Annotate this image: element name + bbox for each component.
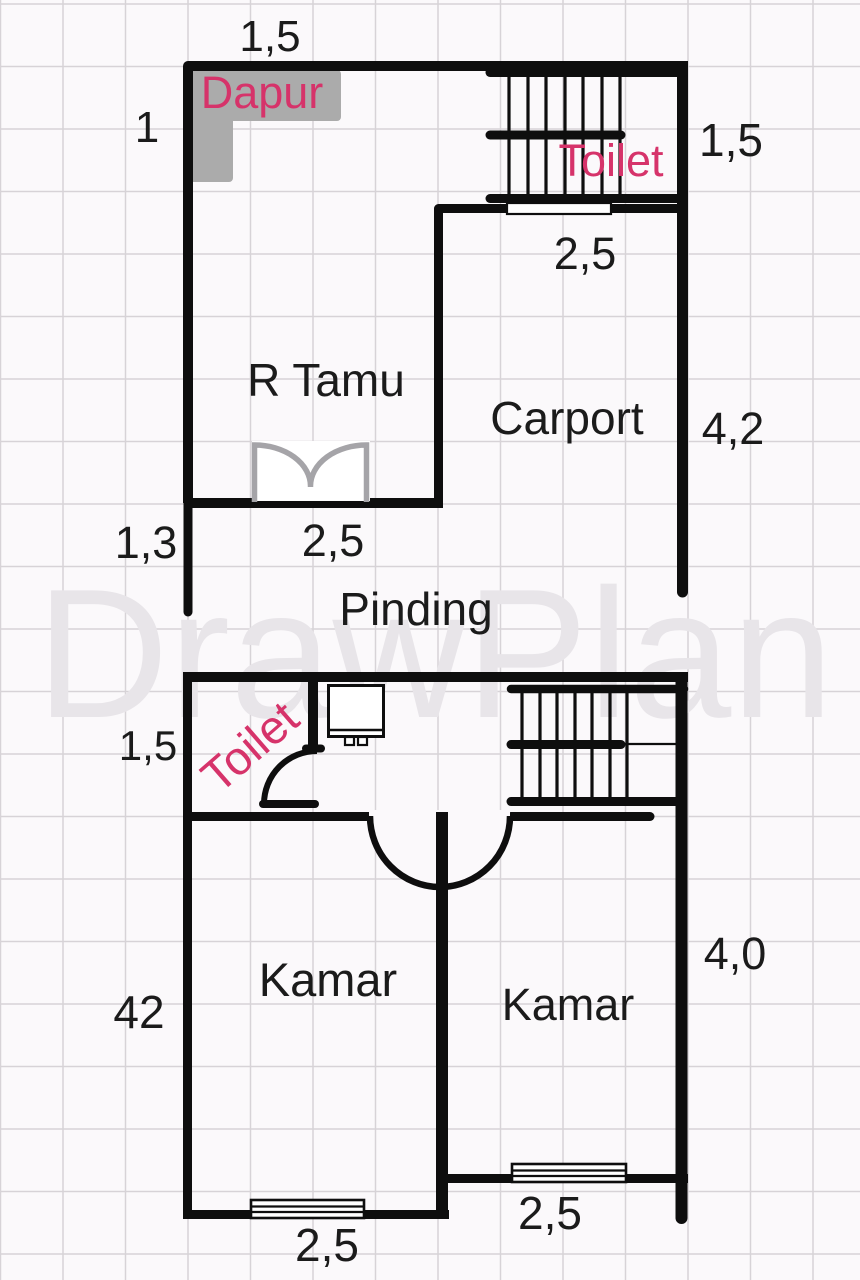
svg-text:Kamar: Kamar	[502, 979, 635, 1030]
svg-text:1,3: 1,3	[115, 517, 178, 568]
svg-text:R Tamu: R Tamu	[247, 354, 405, 406]
svg-text:2,5: 2,5	[302, 515, 365, 566]
svg-text:1: 1	[135, 103, 159, 152]
svg-text:Kamar: Kamar	[259, 953, 397, 1006]
svg-text:Carport: Carport	[490, 392, 644, 444]
svg-text:42: 42	[113, 986, 164, 1038]
svg-text:1,5: 1,5	[119, 722, 177, 769]
svg-text:4,0: 4,0	[704, 928, 767, 979]
svg-text:Pinding: Pinding	[339, 583, 492, 635]
svg-text:4,2: 4,2	[702, 403, 765, 454]
svg-text:1,5: 1,5	[699, 114, 763, 166]
svg-text:1,5: 1,5	[239, 12, 300, 61]
svg-text:Toilet: Toilet	[558, 135, 664, 186]
svg-text:2,5: 2,5	[295, 1219, 359, 1271]
svg-text:Dapur: Dapur	[201, 67, 324, 118]
svg-text:2,5: 2,5	[518, 1187, 582, 1239]
svg-text:2,5: 2,5	[554, 228, 617, 279]
